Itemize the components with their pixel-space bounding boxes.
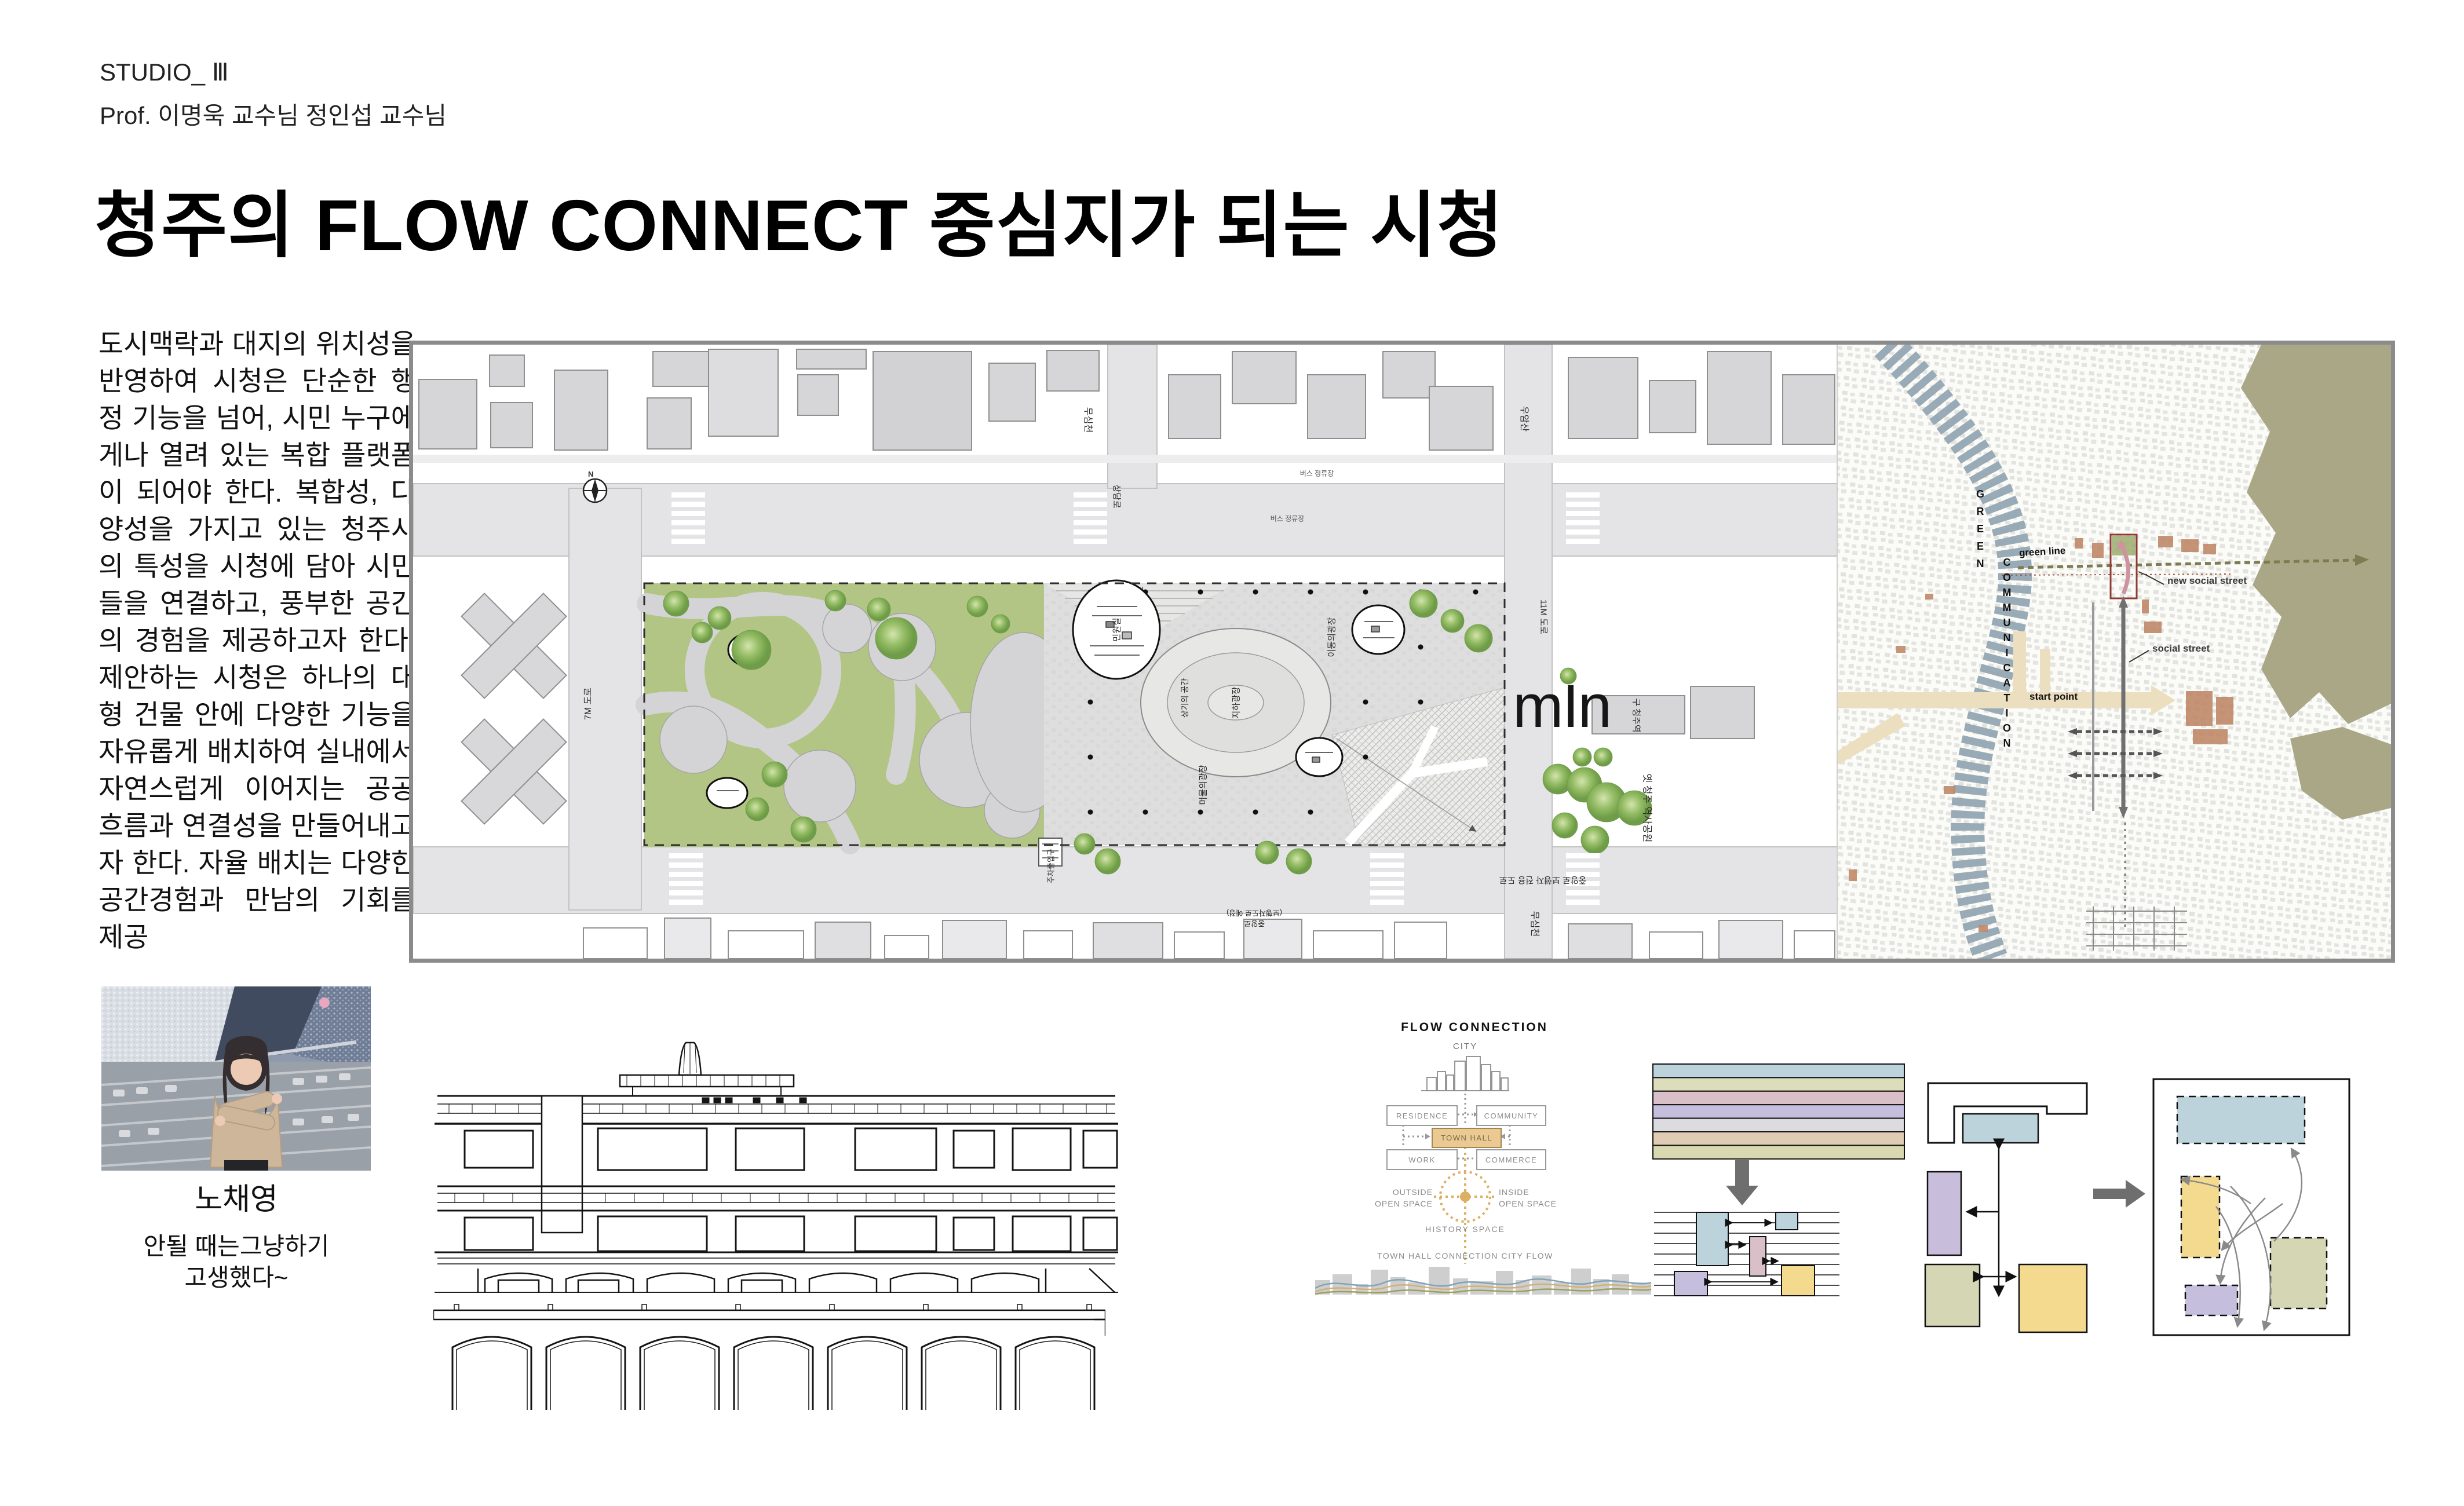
compass-north-label: N — [588, 470, 593, 478]
flow-box-residence: RESIDENCE — [1386, 1105, 1458, 1126]
member-quote-line2: 고생했다~ — [93, 1258, 380, 1293]
label-sangdang-ro: 상당로 — [1111, 484, 1123, 508]
site-plan-and-map-graphic — [413, 345, 2391, 959]
flow-box-work: WORK — [1386, 1149, 1458, 1170]
map-label-social-street: social street — [2152, 643, 2210, 655]
flow-box-community: COMMUNITY — [1476, 1105, 1546, 1126]
studio-label: STUDIO_ Ⅲ — [100, 58, 229, 86]
flow-box-commerce: COMMERCE — [1476, 1149, 1546, 1170]
map-label-communication: COMMUNICATION — [2001, 557, 2013, 752]
main-panel: 7M 도로 무심천 상당로 버스 정류장 버스 정류장 우암산 11M 도로 무… — [409, 341, 2395, 963]
flow-box-town-hall: TOWN HALL — [1432, 1128, 1502, 1148]
member-quote-line1: 안될 때는그냥하기 — [93, 1227, 380, 1262]
label-sanggi-space: 상기의 공간 — [1179, 678, 1191, 718]
label-history-park: 옛 청주 역사공원 — [1641, 774, 1656, 843]
label-moving-plaza: 이동의광장 — [1326, 617, 1338, 657]
city-skyline-icon — [1421, 1057, 1509, 1091]
map-label-new-social-street: new social street — [2167, 575, 2247, 587]
elevation-drawing-arcade — [433, 1302, 1105, 1412]
elevation-drawing-main — [429, 1038, 1124, 1293]
massing-diagrams — [1651, 1059, 2352, 1338]
label-staying-plaza: 머물의광장 — [1197, 765, 1209, 805]
free-plan-frame — [2153, 1079, 2349, 1335]
label-minwon-room: 민원실 — [1111, 617, 1123, 641]
watermark-text: mIn — [1513, 672, 1611, 741]
professors-label: Prof. 이명욱 교수님 정인섭 교수님 — [100, 96, 447, 131]
flow-outside-open-space: OUTSIDE OPEN SPACE — [1375, 1186, 1433, 1210]
map-label-start-point: start point — [2029, 691, 2078, 703]
label-old-station: 구 청주역 — [1631, 698, 1643, 732]
flow-title: FLOW CONNECTION — [1315, 1021, 1634, 1035]
label-bus-stop-2: 버스 정류장 — [1300, 469, 1334, 478]
label-11m-road: 11M 도로 — [1538, 600, 1550, 634]
label-parking-entrance: 주차출입구 — [1045, 849, 1056, 883]
stadium-photo-graphic — [101, 986, 371, 1171]
flow-history-space: HISTORY SPACE — [1315, 1224, 1615, 1234]
program-bars — [1653, 1064, 1904, 1159]
label-underground-plaza: 지하광장 — [1230, 686, 1242, 718]
flow-inside-open-space: INSIDE OPEN SPACE — [1499, 1186, 1557, 1210]
label-jungang-ped-road: 중앙로 보행자 전용 도로 — [1499, 875, 1587, 887]
down-arrow — [1726, 1159, 1758, 1205]
right-arrow — [2093, 1180, 2145, 1208]
flow-city-label: CITY — [1315, 1041, 1615, 1051]
city-map — [1837, 345, 2391, 959]
site-plan — [413, 345, 1837, 959]
map-label-green-line: green line — [2019, 545, 2066, 559]
page-title: 청주의 FLOW CONNECT 중심지가 되는 시청 — [94, 167, 1503, 271]
map-label-green: GREEN — [1974, 488, 1986, 575]
label-wooamsan: 우암산 — [1518, 406, 1532, 432]
intro-paragraph: 도시맥락과 대지의 위치성을 반영하여 시청은 단순한 행정 기능을 넘어, 시… — [98, 326, 416, 956]
section-diagram — [1925, 1083, 2087, 1332]
compass-icon — [583, 479, 607, 502]
label-7m-road: 7M 도로 — [580, 688, 594, 720]
member-name: 노채영 — [93, 1175, 380, 1218]
label-bus-stop-1: 버스 정류장 — [1271, 514, 1305, 524]
label-jungang-planned: 중앙로 (보행자도로 예정) — [1226, 908, 1282, 928]
label-stream-right: 무심천 — [1529, 911, 1543, 937]
label-stream-top: 무심천 — [1082, 407, 1096, 433]
member-photo — [101, 986, 371, 1171]
flow-caption: TOWN HALL CONNECTION CITY FLOW — [1315, 1251, 1615, 1260]
